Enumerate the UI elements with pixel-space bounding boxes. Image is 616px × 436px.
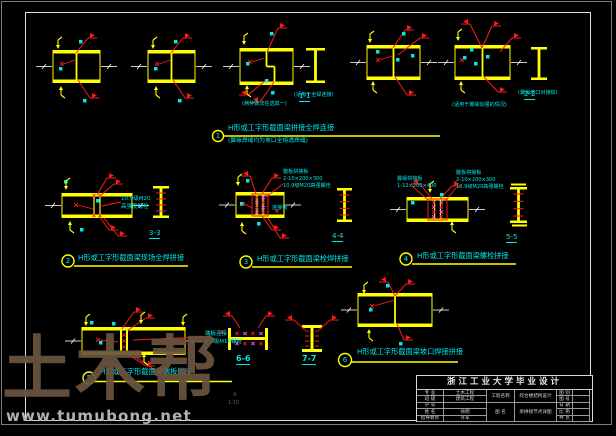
section-label-6: 6-6	[236, 354, 250, 365]
detail-2-title: H形或工字形截面梁现场全焊拼接	[78, 254, 184, 262]
section-label-7: 7-7	[302, 354, 316, 365]
note-top-e: (适用于翼缘加强的情况)	[452, 103, 507, 109]
detail-1-subtitle: (翼缘焊缝均为坡口全熔透焊缝)	[228, 138, 308, 145]
note-d4-right1: 腹板拼接板	[456, 171, 481, 177]
tb-value	[573, 416, 590, 422]
detail-1-beam-d	[350, 25, 437, 95]
watermark-url: www.tumubong.net	[6, 407, 192, 425]
section-7-text: 7-7	[302, 354, 316, 365]
section-label-4: 4-4	[332, 224, 343, 242]
section-3-text: 3-3	[149, 229, 160, 239]
section-5-5	[510, 184, 527, 227]
note-d4-left1: 翼缘拼接板	[397, 177, 422, 183]
detail-bubble-6-number: 6	[340, 356, 350, 364]
detail-1-beam-b	[131, 33, 212, 103]
tb-project-label: 工程名称	[487, 390, 515, 403]
detail-bubble-4-number: 4	[401, 255, 411, 263]
tb-label: 共 页	[557, 416, 573, 422]
section-7-7	[285, 315, 339, 352]
tb-drawing-value: 梁拼接节点详图	[515, 403, 557, 422]
detail-3-title: H形或工字形截面梁栓焊拼接	[257, 255, 349, 263]
note-d4-right2: 2-10×200×300	[456, 178, 496, 184]
section-4-4	[337, 188, 352, 222]
note-section-2: (翼缘坡口对接焊)	[518, 91, 558, 97]
title-block-grid: 专 业 土木工程 工程名称 综合楼结构设计 图 别 班 级 建筑工程 图 号 学…	[417, 390, 592, 422]
cad-sheet: (两种做法任选其一) 1-1 (适用于全焊连接) (适用于翼缘加强的情况) 2-…	[0, 0, 616, 436]
detail-6-title: H形或工字形截面梁坡口焊接拼接	[357, 348, 463, 356]
section-2-2	[531, 47, 547, 80]
note-top-c: (两种做法任选其一)	[242, 102, 287, 108]
detail-4-title: H形或工字形截面梁螺栓拼接	[417, 252, 509, 260]
note-d2-line1: 10.9级M20	[121, 196, 151, 202]
section-6-text: 6-6	[236, 354, 250, 365]
tb-drawing-label: 图 名	[487, 403, 515, 422]
section-5-text: 5-5	[506, 233, 517, 243]
note-d3-line3: 10.9级M20高强螺栓	[283, 184, 331, 190]
section-label-5: 5-5	[506, 225, 517, 243]
detail-6-beam	[341, 277, 449, 346]
section-4-text: 4-4	[332, 232, 343, 242]
detail-1-title: H形或工字形截面梁拼接全焊连接	[228, 124, 334, 132]
title-block-header: 浙江工业大学毕业设计	[417, 376, 592, 390]
tb-label: 指导教师	[417, 416, 444, 422]
note-d4-left2: 1-12×200×400	[397, 184, 437, 190]
detail-bubble-1-number: 1	[213, 132, 223, 140]
section-1-1	[306, 48, 325, 83]
title-block: 浙江工业大学毕业设计 专 业 土木工程 工程名称 综合楼结构设计 图 别 班 级…	[416, 375, 593, 422]
tb-value: 许军	[444, 416, 487, 422]
detail-bubble-2-number: 2	[63, 257, 73, 265]
note-section-1: (适用于全焊连接)	[294, 93, 334, 99]
note-d3-line1: 腹板拼接板	[283, 170, 308, 176]
detail-bubble-3-number: 3	[241, 258, 251, 266]
note-d4-right3: 10.9级M20高强螺栓	[456, 185, 504, 191]
watermark-brand: 土木帮	[2, 334, 221, 404]
detail-1-beam-e	[438, 19, 527, 93]
plot-stamp-line2: 1:10	[228, 400, 239, 406]
section-label-3: 3-3	[149, 221, 160, 239]
detail-1-beam-c	[223, 23, 310, 102]
note-d3-line2: 2-10×200×300	[283, 177, 323, 183]
detail-1-beam-a	[36, 33, 117, 103]
section-3-3	[153, 186, 169, 218]
tb-project-value: 综合楼结构设计	[515, 390, 557, 403]
note-d3-tag: 连接板	[272, 206, 287, 212]
plot-stamp-line1: A	[233, 392, 236, 398]
note-d2-line2: 高强度螺栓	[121, 204, 149, 210]
